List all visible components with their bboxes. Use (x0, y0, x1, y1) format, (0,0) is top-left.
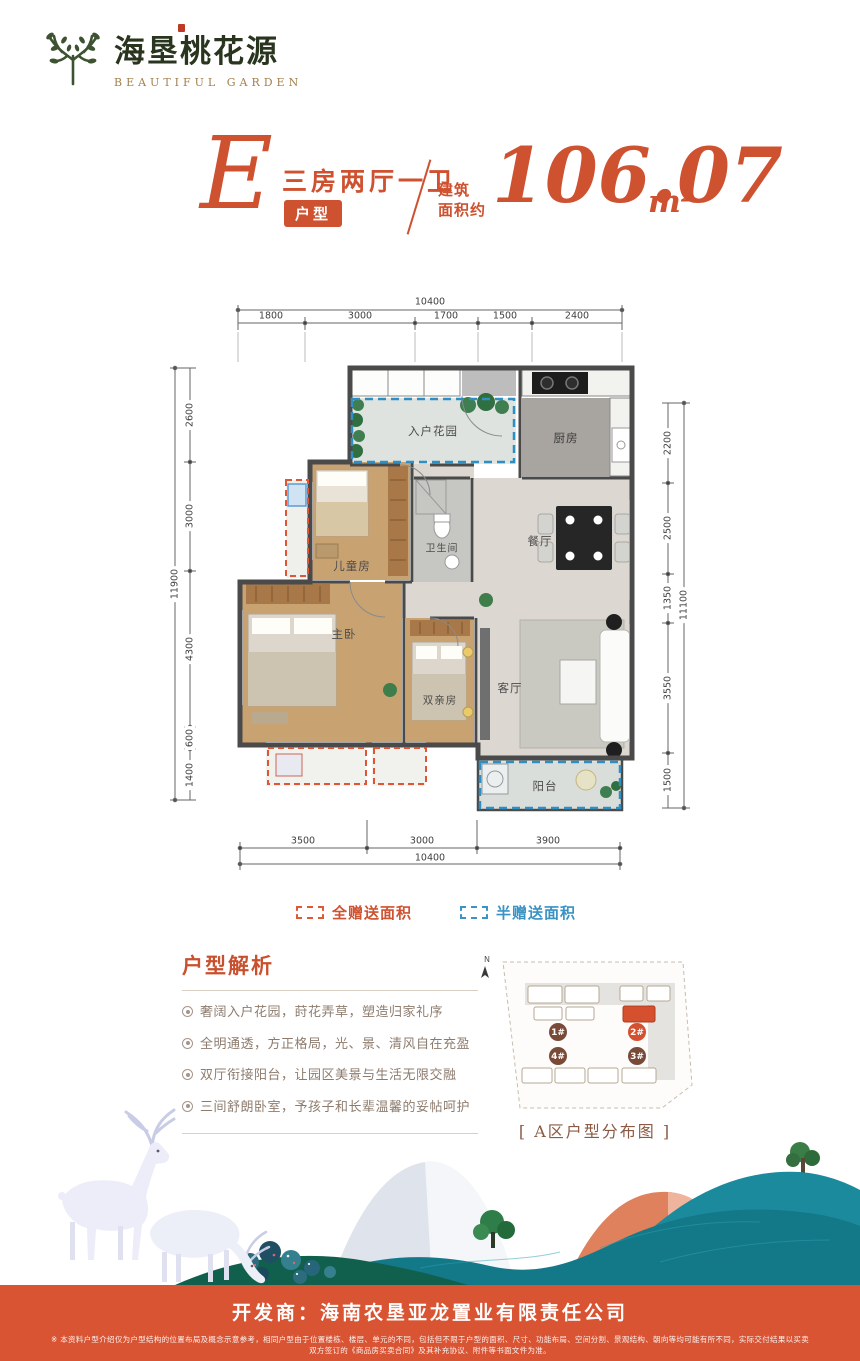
dim-right-seg: 2200 (663, 428, 674, 458)
legend-full-gift-swatch (296, 906, 324, 919)
legend-half-gift: 半赠送面积 (460, 902, 576, 923)
room-label-kitchen: 厨房 (554, 430, 579, 446)
analysis-divider-top (182, 990, 478, 991)
dim-right-seg: 3550 (663, 673, 674, 703)
footer-bar: 开发商：海南农垦亚龙置业有限责任公司 ※ 本资料户型介绍仅为户型结构的位置布局及… (0, 1285, 860, 1361)
poster-page: 海垦桃花源 BEAUTIFUL GARDEN E 三房两厅一卫 户型 建筑 面积… (0, 0, 860, 1361)
room-label-balcony: 阳台 (533, 778, 558, 794)
gift-area-legend: 全赠送面积 半赠送面积 (296, 902, 576, 923)
ring-bullet-icon (182, 1069, 193, 1080)
area-unit: m² (648, 184, 694, 220)
building-label-4: 4# (551, 1052, 565, 1062)
north-arrow-icon (481, 966, 489, 978)
unit-rooms-desc: 三房两厅一卫 (282, 162, 456, 198)
dim-left-seg: 600 (185, 726, 196, 750)
area-value: 106.07 (492, 130, 783, 221)
unit-letter: E (200, 124, 273, 224)
building-label-3: 3# (630, 1052, 644, 1062)
dim-top-seg: 3000 (345, 311, 375, 322)
floorplan-drawing (0, 290, 860, 890)
dim-right-seg: 1350 (663, 583, 674, 613)
legend-full-gift: 全赠送面积 (296, 902, 412, 923)
room-label-master: 主卧 (332, 626, 357, 642)
room-label-parents: 双亲房 (423, 693, 458, 708)
deer-grazing (150, 1210, 269, 1283)
landscape-illustration (0, 1090, 860, 1285)
dim-bottom-seg: 3000 (407, 836, 437, 847)
dim-bottom-seg: 3900 (533, 836, 563, 847)
dim-right-seg: 2500 (663, 513, 674, 543)
developer-line: 开发商：海南农垦亚龙置业有限责任公司 (0, 1298, 860, 1325)
area-label: 建筑 面积约 (438, 180, 486, 221)
dim-top-seg: 1800 (256, 311, 286, 322)
antler-tree-icon (40, 26, 106, 88)
analysis-title: 户型解析 (182, 950, 478, 980)
ring-bullet-icon (182, 1006, 193, 1017)
dim-left-total: 11900 (170, 566, 181, 602)
unit-type-badge: 户型 (284, 200, 342, 227)
dim-left-seg: 3000 (185, 501, 196, 531)
dim-bottom-total: 10400 (412, 853, 448, 864)
room-label-kids: 儿童房 (333, 558, 371, 574)
brand-name-en: BEAUTIFUL GARDEN (114, 76, 302, 89)
legend-half-gift-swatch (460, 906, 488, 919)
dim-left-seg: 2600 (185, 400, 196, 430)
room-label-garden: 入户花园 (408, 423, 458, 439)
analysis-point: 双厅衔接阳台，让园区美景与生活无限交融 (182, 1060, 478, 1092)
room-label-dining: 餐厅 (528, 533, 553, 549)
brand-name-cn: 海垦桃花源 (114, 26, 302, 71)
analysis-point: 全明通透，方正格局，光、景、清风自在充盈 (182, 1029, 478, 1061)
dim-right-seg: 1500 (663, 765, 674, 795)
dim-top-total: 10400 (412, 297, 448, 308)
building-label-1: 1# (551, 1028, 565, 1038)
building-label-2: 2# (630, 1028, 644, 1038)
dim-left-seg: 1400 (185, 760, 196, 790)
north-label: N (484, 955, 490, 964)
highlighted-building (623, 1006, 655, 1022)
dim-top-seg: 2400 (562, 311, 592, 322)
dim-left-seg: 4300 (185, 634, 196, 664)
brand-logo: 海垦桃花源 BEAUTIFUL GARDEN (40, 26, 302, 89)
room-label-living: 客厅 (498, 680, 523, 696)
disclaimer-text: ※ 本资料户型介绍仅为户型结构的位置布局及概念示意参考，相同户型由于位置楼栋、楼… (50, 1334, 810, 1356)
dim-top-seg: 1500 (490, 311, 520, 322)
dim-top-seg: 1700 (431, 311, 461, 322)
room-label-bath: 卫生间 (426, 540, 459, 555)
ring-bullet-icon (182, 1038, 193, 1049)
brand-seal (178, 24, 185, 32)
dim-bottom-seg: 3500 (288, 836, 318, 847)
unit-headline: E 三房两厅一卫 户型 建筑 面积约 106.07 m² (200, 148, 690, 248)
dim-right-total: 11100 (679, 587, 690, 623)
analysis-point: 奢阔入户花园，莳花弄草，塑造归家礼序 (182, 997, 478, 1029)
